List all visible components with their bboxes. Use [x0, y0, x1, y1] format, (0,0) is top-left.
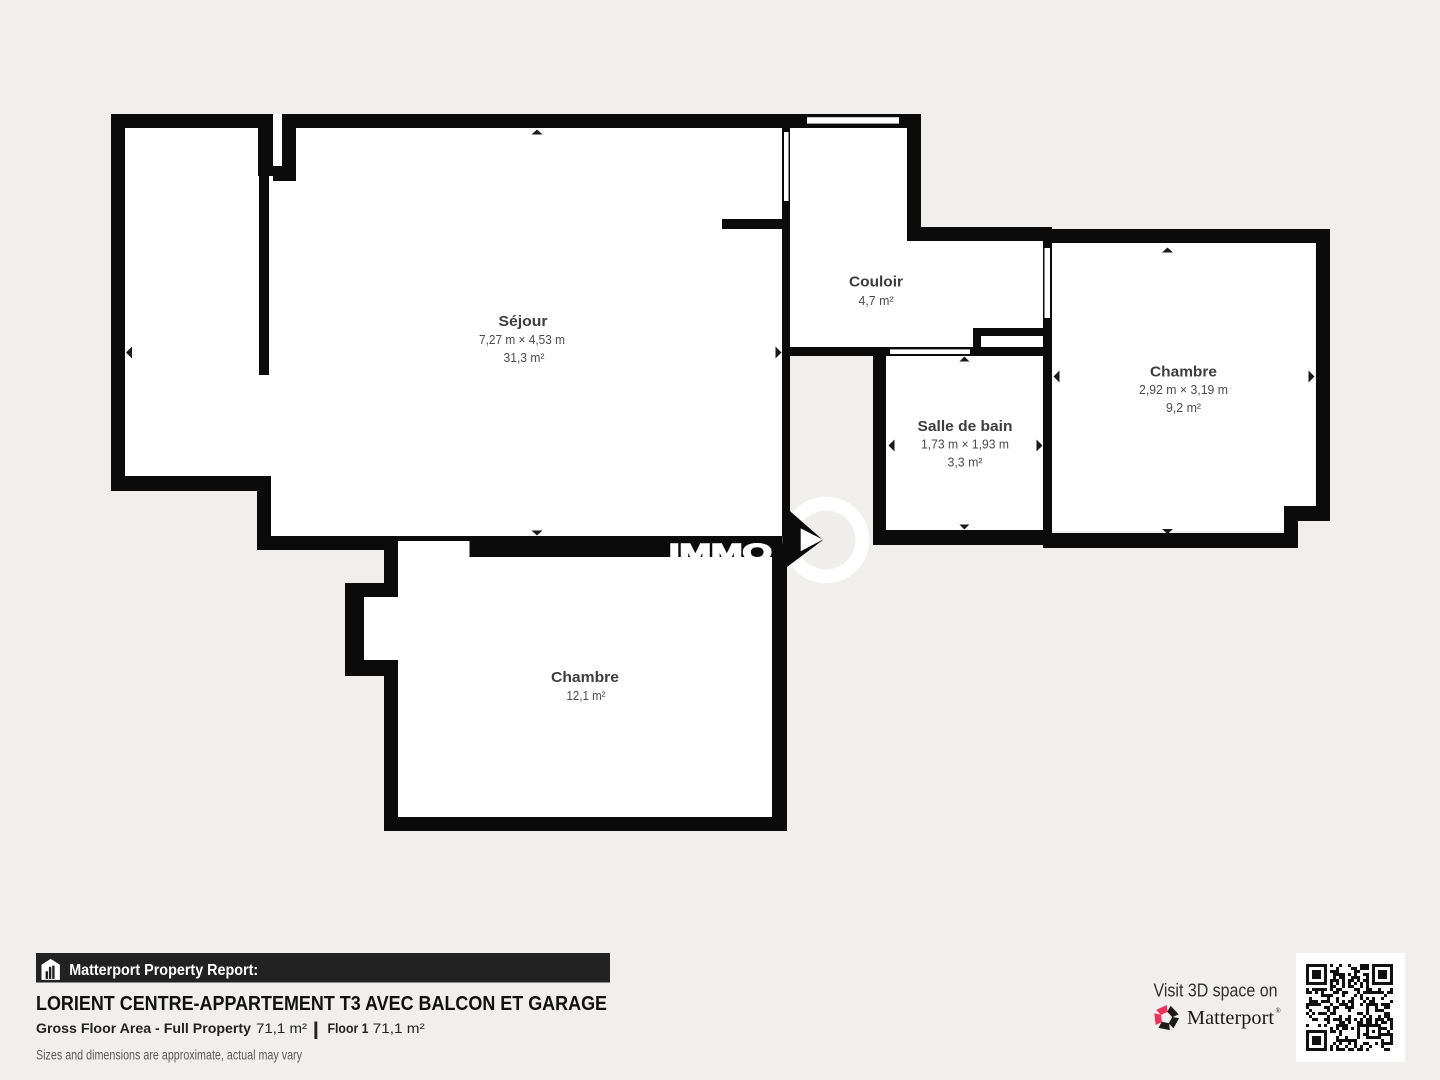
svg-text:Gross Floor Area - Full Proper: Gross Floor Area - Full Property [36, 1020, 251, 1036]
svg-text:12,1 m²: 12,1 m² [567, 688, 607, 703]
svg-text:LORIENT CENTRE-APPARTEMENT T3: LORIENT CENTRE-APPARTEMENT T3 AVEC BALCO… [36, 993, 607, 1015]
svg-text:Matterport Property Report:: Matterport Property Report: [69, 962, 258, 979]
svg-text:IMMO: IMMO [669, 540, 772, 567]
svg-text:2,92 m × 3,19 m: 2,92 m × 3,19 m [1139, 382, 1228, 397]
svg-text:Visit 3D space on: Visit 3D space on [1154, 980, 1278, 1000]
svg-text:1,73 m × 1,93 m: 1,73 m × 1,93 m [921, 437, 1009, 452]
svg-text:Matterport: Matterport [1187, 1008, 1275, 1029]
svg-text:71,1 m²: 71,1 m² [373, 1020, 425, 1036]
svg-text:9,2 m²: 9,2 m² [1166, 400, 1202, 415]
svg-text:31,3 m²: 31,3 m² [504, 350, 546, 365]
svg-text:Couloir: Couloir [849, 274, 903, 291]
svg-text:Floor 1: Floor 1 [328, 1020, 369, 1036]
svg-text:Séjour: Séjour [499, 313, 548, 330]
svg-text:7,27 m × 4,53 m: 7,27 m × 4,53 m [479, 332, 565, 347]
svg-text:Salle de bain: Salle de bain [918, 418, 1013, 435]
svg-text:4,7 m²: 4,7 m² [859, 293, 895, 308]
svg-text:Chambre: Chambre [551, 669, 619, 686]
svg-text:®: ® [1276, 1007, 1282, 1015]
svg-text:Chambre: Chambre [1150, 363, 1217, 380]
svg-text:Sizes and dimensions are appro: Sizes and dimensions are approximate, ac… [36, 1047, 302, 1062]
svg-text:71,1 m²: 71,1 m² [256, 1020, 307, 1036]
svg-text:3,3 m²: 3,3 m² [948, 455, 984, 470]
